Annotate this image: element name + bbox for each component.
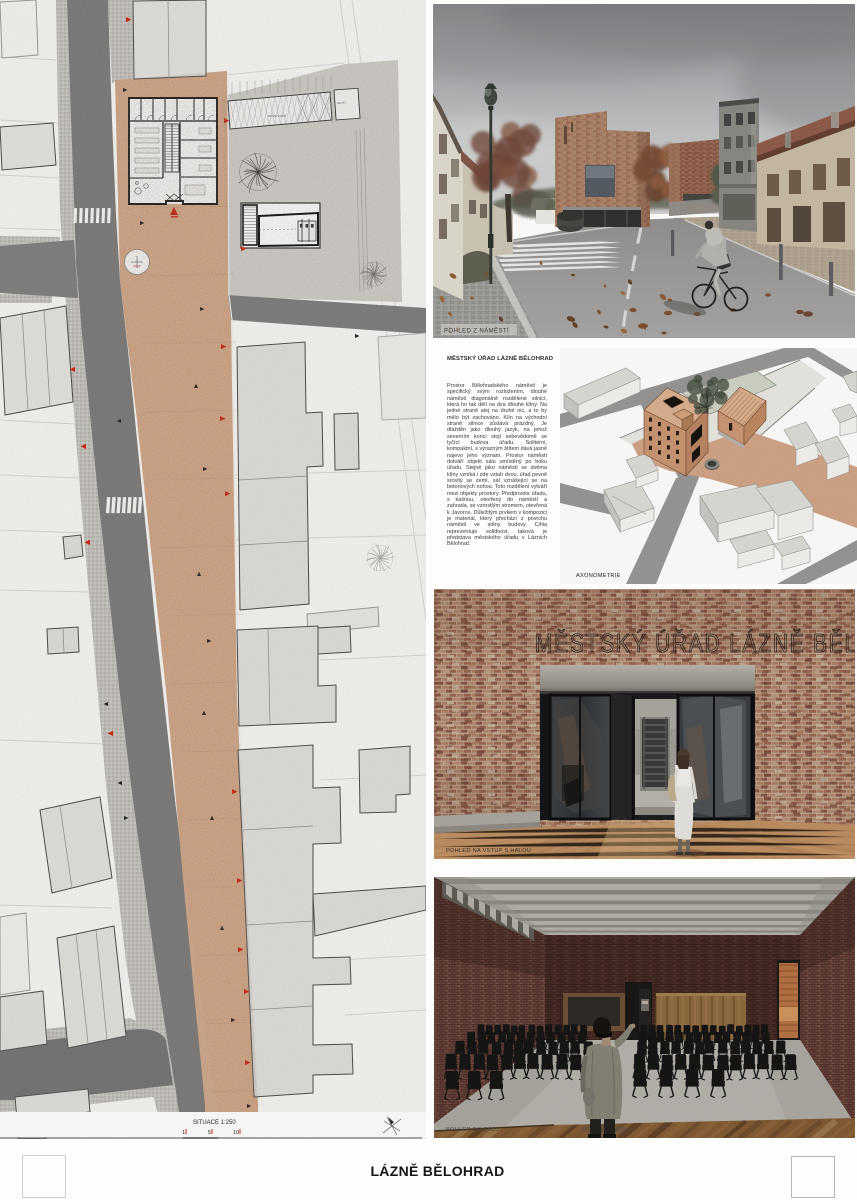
svg-text:POHLED Z NÁMĚSTÍ: POHLED Z NÁMĚSTÍ: [444, 327, 509, 335]
svg-text:AXONOMETRIE: AXONOMETRIE: [576, 573, 621, 579]
svg-text:POHLED DO SÁLU: POHLED DO SÁLU: [446, 1126, 499, 1133]
svg-text:POHLED NA VSTUP S HALOU: POHLED NA VSTUP S HALOU: [446, 848, 531, 854]
svg-text:MĚSTSKÝ ÚŘAD LÁZNĚ BĚLOHRAD: MĚSTSKÝ ÚŘAD LÁZNĚ BĚLOHRAD: [535, 629, 855, 657]
